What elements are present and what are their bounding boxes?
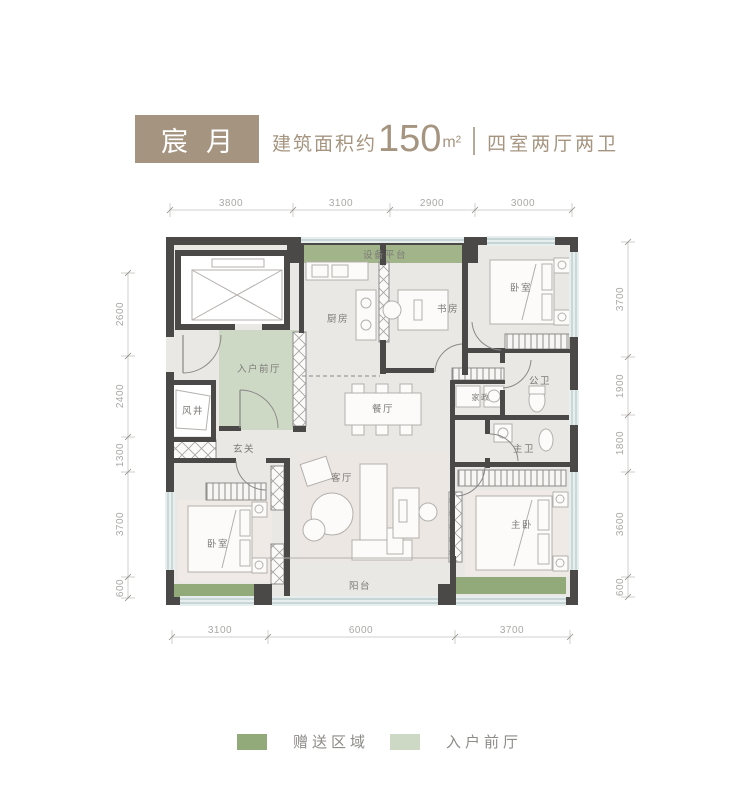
label-master-bedroom: 主卧: [511, 519, 533, 531]
dim-right-4: 600: [615, 578, 626, 596]
window-left-bedroom: [165, 492, 175, 570]
dim-top-0: 3800: [219, 198, 243, 209]
label-housekeeping: 家政: [472, 392, 491, 402]
dim-right-0: 3700: [615, 287, 626, 311]
elevator-shaft: [181, 256, 284, 324]
legend-foyer-label: 入户前厅: [446, 731, 522, 752]
bedroom-top-wardrobe: [505, 334, 569, 349]
dim-left-1: 2400: [115, 384, 126, 408]
dim-top-2: 2900: [420, 198, 444, 209]
label-entry-foyer: 入户前厅: [237, 363, 281, 375]
label-hallway: 玄关: [233, 443, 255, 455]
window-equipment-top: [301, 237, 464, 243]
label-kitchen: 厨房: [327, 313, 349, 325]
public-bath-fixtures: [529, 386, 545, 412]
hatch-col-1: [271, 466, 284, 510]
label-bedroom-top: 卧室: [510, 282, 532, 294]
legend-gift-area: 赠送区域: [237, 731, 369, 752]
dim-right-2: 1800: [615, 431, 626, 455]
window-bottom-left: [180, 596, 254, 606]
label-master-bath: 主卫: [513, 443, 535, 455]
dim-top-1: 3100: [329, 198, 353, 209]
dim-bottom-1: 6000: [349, 625, 373, 636]
housekeeping-counter-strip: [452, 368, 504, 380]
label-dining: 餐厅: [372, 403, 394, 415]
master-wardrobe: [458, 470, 566, 486]
dim-left-2: 1300: [115, 443, 126, 467]
legend-entry-foyer: 入户前厅: [390, 731, 522, 752]
hatch-col-2: [271, 544, 284, 584]
label-wind-shaft: 风井: [182, 405, 204, 417]
foyer-hatch-column: [293, 332, 306, 426]
dim-bottom-0: 3100: [208, 625, 232, 636]
gift-zone-right: [456, 577, 566, 594]
entry-foyer-zone: [219, 330, 303, 430]
label-bedroom-left: 卧室: [207, 538, 229, 550]
legend-gift-swatch: [237, 734, 267, 750]
dim-left-0: 2600: [115, 302, 126, 326]
legend-foyer-swatch: [390, 734, 420, 750]
dim-top-3: 3000: [511, 198, 535, 209]
label-equipment-platform: 设备平台: [363, 249, 407, 261]
window-right-bath: [569, 390, 579, 425]
dim-left-3: 3700: [115, 512, 126, 536]
window-bottom-right: [456, 596, 566, 606]
legend-gift-label: 赠送区域: [293, 731, 369, 752]
hallway-cabinet: [171, 440, 216, 460]
dim-right-3: 3600: [615, 512, 626, 536]
label-study: 书房: [437, 303, 459, 315]
window-right-bedroom: [569, 252, 579, 337]
label-public-bath: 公卫: [529, 376, 551, 387]
label-balcony: 阳台: [349, 580, 371, 592]
window-bottom-balcony: [272, 596, 438, 606]
dim-left-4: 600: [115, 579, 126, 597]
window-right-master: [569, 472, 579, 570]
floorplan-page: 宸月 建筑面积约 150 m² 四室两厅两卫: [0, 0, 743, 800]
label-living: 客厅: [331, 472, 353, 484]
dim-right-1: 1900: [615, 374, 626, 398]
floorplan-svg: 设备平台 厨房 书房 卧室 入户前厅 风井 餐厅 公卫 家政 玄关 主卫 客厅 …: [0, 0, 743, 800]
bedroom-left-wardrobe: [206, 483, 266, 500]
dim-bottom-2: 3700: [500, 625, 524, 636]
window-top-bedroom: [487, 236, 555, 246]
